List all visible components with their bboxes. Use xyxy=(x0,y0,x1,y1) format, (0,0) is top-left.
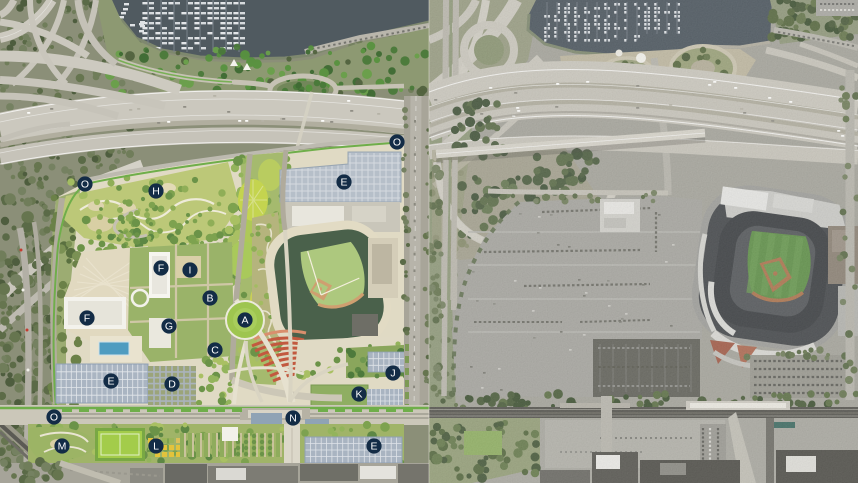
svg-text:O: O xyxy=(50,412,58,424)
svg-text:J: J xyxy=(390,368,395,380)
svg-text:O: O xyxy=(81,179,89,191)
svg-text:K: K xyxy=(355,389,362,401)
svg-text:G: G xyxy=(165,321,173,333)
svg-text:N: N xyxy=(289,413,297,425)
svg-text:I: I xyxy=(189,265,192,277)
svg-text:E: E xyxy=(340,177,347,189)
svg-text:E: E xyxy=(370,441,377,453)
svg-text:B: B xyxy=(206,293,213,305)
svg-text:M: M xyxy=(58,441,67,453)
svg-text:A: A xyxy=(241,315,248,327)
svg-text:C: C xyxy=(211,345,219,357)
svg-text:D: D xyxy=(168,379,176,391)
svg-text:F: F xyxy=(158,263,164,275)
svg-text:F: F xyxy=(84,313,90,325)
svg-text:O: O xyxy=(393,137,401,149)
svg-text:L: L xyxy=(153,441,159,453)
svg-text:H: H xyxy=(152,186,160,198)
svg-text:E: E xyxy=(107,376,114,388)
